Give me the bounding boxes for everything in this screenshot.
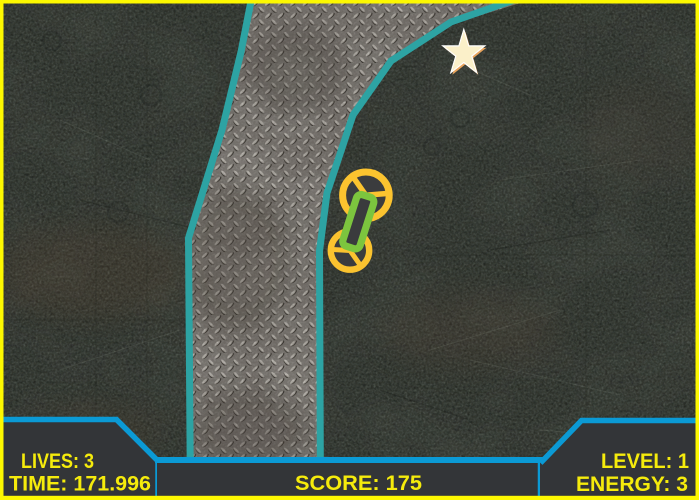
svg-text:LIVES: 3: LIVES: 3 [21,450,94,473]
svg-text:SCORE: 175: SCORE: 175 [295,472,422,495]
svg-text:ENERGY: 3: ENERGY: 3 [576,473,688,496]
svg-text:LEVEL: 1: LEVEL: 1 [601,450,689,473]
svg-text:TIME: 171.996: TIME: 171.996 [9,473,151,496]
